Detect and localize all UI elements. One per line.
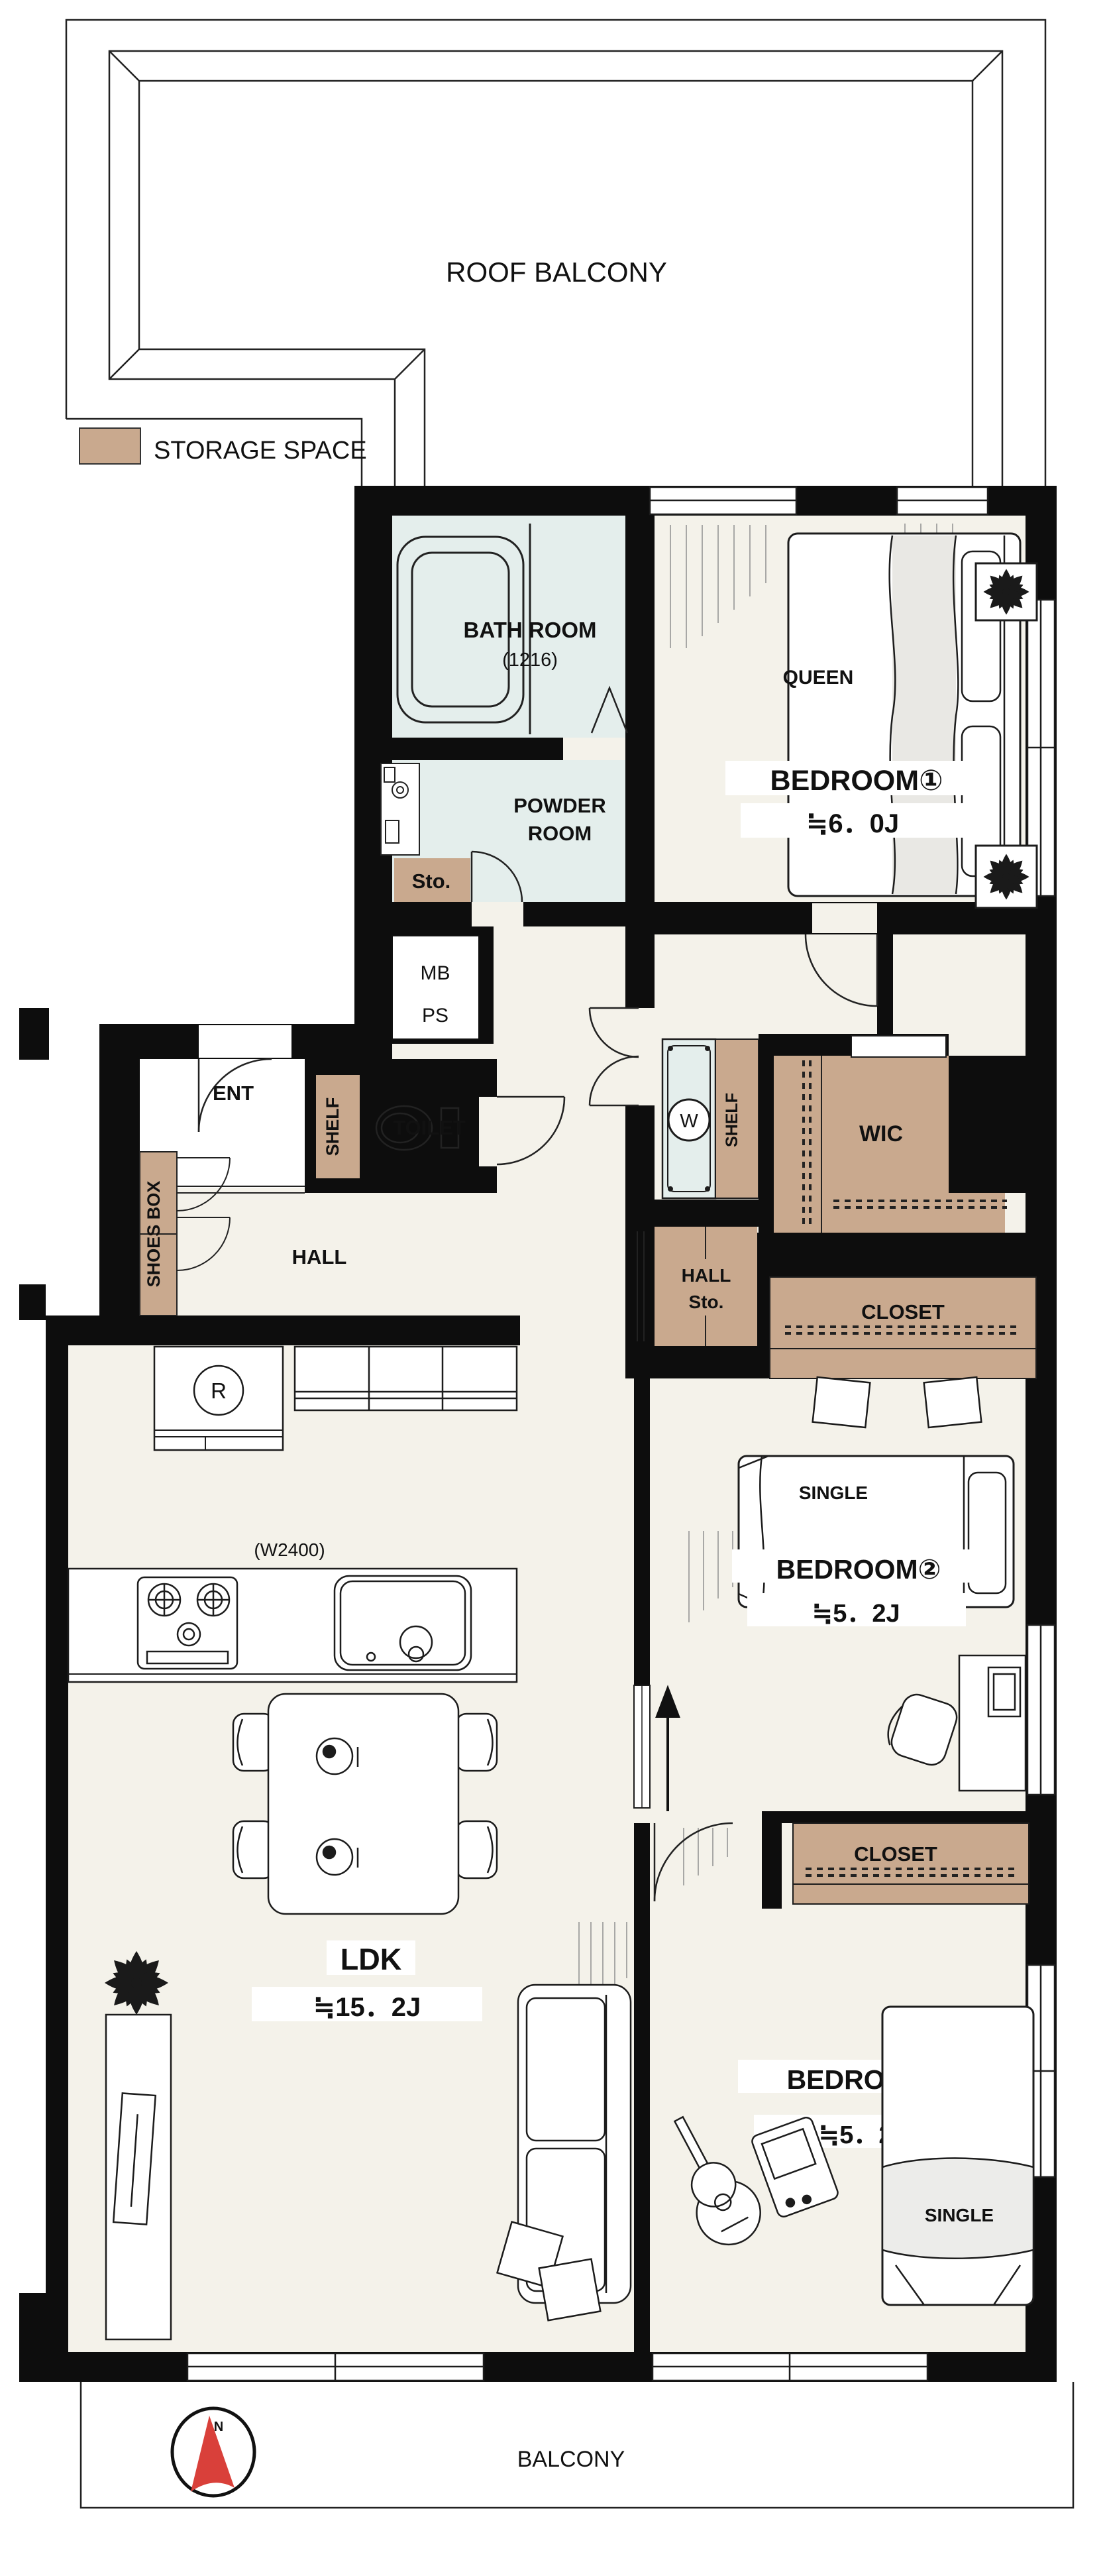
bath-size-label: (1216) xyxy=(502,649,558,671)
bedroom3-bed-label: SINGLE xyxy=(925,2205,994,2225)
closet1-label: CLOSET xyxy=(861,1300,945,1323)
storage-legend-label: STORAGE SPACE xyxy=(154,437,367,465)
kitchen-counter xyxy=(68,1569,517,1682)
refrigerator-label: R xyxy=(211,1378,227,1403)
bedroom2-desk xyxy=(959,1655,1026,1791)
ldk-label: LDK xyxy=(341,1942,402,1976)
ps-label: PS xyxy=(422,1005,448,1027)
bedroom1-label: BEDROOM① xyxy=(770,765,943,797)
balcony-label: BALCONY xyxy=(517,2447,625,2472)
toilet-shelf-label: SHELF xyxy=(323,1097,342,1156)
hall-storage-label-2: Sto. xyxy=(689,1292,724,1312)
toilet-label: TOILET xyxy=(393,1116,466,1139)
meter-pipe-box: MB PS xyxy=(392,936,479,1039)
powder-storage-label: Sto. xyxy=(412,869,451,893)
tv-board xyxy=(106,2015,171,2339)
closet2-label: CLOSET xyxy=(854,1842,937,1866)
hall-label: HALL xyxy=(292,1245,347,1268)
mb-label: MB xyxy=(421,962,450,984)
sliding-partition[interactable] xyxy=(634,1685,650,1808)
bedroom2-bed-label: SINGLE xyxy=(799,1483,868,1503)
floor-plan-page: ROOF BALCONY STORAGE SPACE xyxy=(0,0,1105,2576)
ldk-size-label: ≒15．2J xyxy=(313,1993,421,2022)
bedroom1-bed-label: QUEEN xyxy=(783,667,854,689)
bedroom1-size-label: ≒6．0J xyxy=(806,809,899,838)
bedroom2-label: BEDROOM② xyxy=(776,1554,941,1585)
ent-label: ENT xyxy=(213,1082,254,1105)
powder-room-label-2: ROOM xyxy=(528,822,592,845)
hall-storage xyxy=(637,1227,757,1346)
shoes-box-label: SHOES BOX xyxy=(144,1181,164,1288)
kitchen-cupboard xyxy=(295,1347,517,1410)
washer-shelf-label: SHELF xyxy=(723,1093,741,1147)
powder-room-label-1: POWDER xyxy=(513,794,606,817)
roof-balcony-label: ROOF BALCONY xyxy=(446,256,667,288)
washbasin xyxy=(381,763,419,855)
bedroom3-bed xyxy=(882,2007,1033,2305)
bath-room-label: BATH ROOM xyxy=(463,618,596,642)
compass-north-label: N xyxy=(214,2420,223,2434)
compass: N xyxy=(172,2408,254,2496)
closet1 xyxy=(770,1277,1036,1378)
storage-swatch xyxy=(79,428,140,464)
floor-plan-svg: ROOF BALCONY STORAGE SPACE xyxy=(0,0,1105,2576)
wic-label: WIC xyxy=(859,1121,903,1147)
kitchen-width-label: (W2400) xyxy=(254,1540,325,1560)
hall-storage-label-1: HALL xyxy=(682,1265,731,1286)
washer-label: W xyxy=(680,1111,698,1132)
bedroom2-size-label: ≒5．2J xyxy=(812,1600,900,1628)
dining-set xyxy=(233,1694,497,1914)
